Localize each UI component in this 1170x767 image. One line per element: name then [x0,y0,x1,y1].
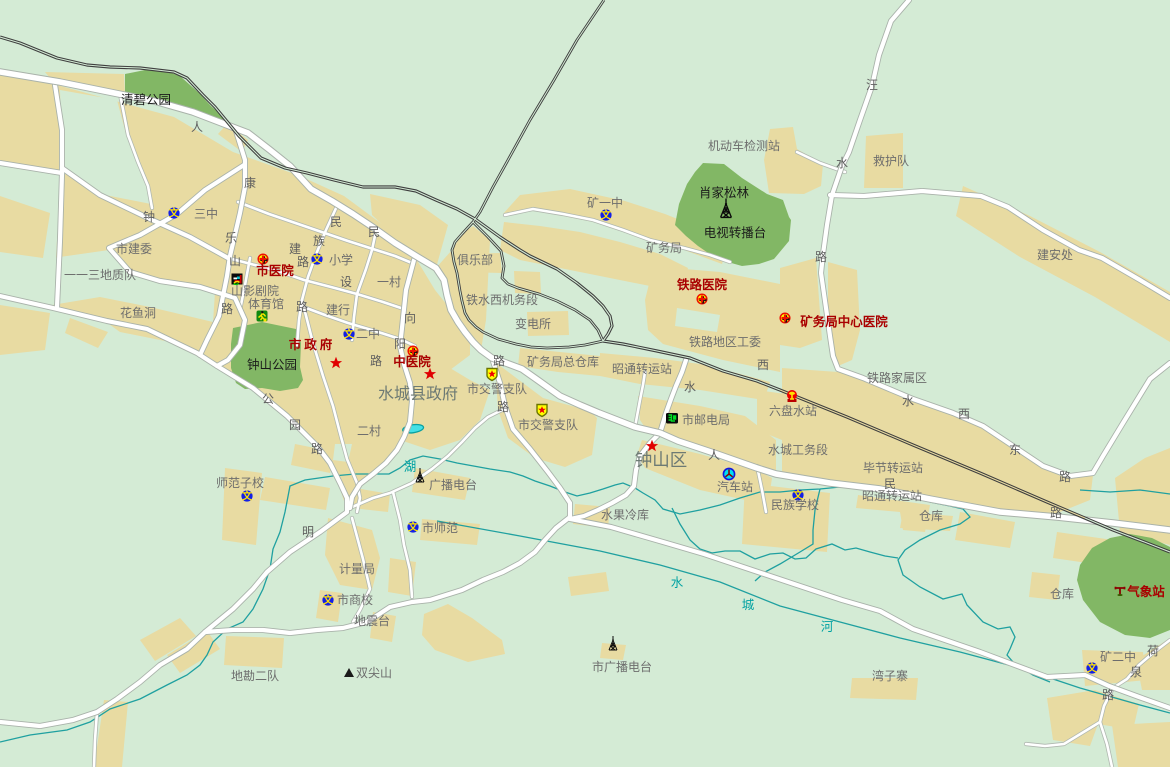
svg-text:市商校: 市商校 [337,592,373,607]
svg-text:汽车站: 汽车站 [717,479,753,494]
svg-text:市交警支队: 市交警支队 [467,381,527,396]
svg-text:二村: 二村 [357,424,381,438]
svg-text:湾子寨: 湾子寨 [872,668,908,683]
svg-text:市广播电台: 市广播电台 [592,659,652,674]
svg-text:路: 路 [221,301,233,316]
svg-text:气象站: 气象站 [1126,584,1165,599]
svg-text:水: 水 [836,156,848,170]
svg-text:一一三地质队: 一一三地质队 [64,267,136,282]
svg-text:路: 路 [370,353,382,368]
svg-text:设: 设 [340,275,352,289]
svg-text:向: 向 [404,310,416,325]
svg-text:仓库: 仓库 [1050,586,1074,601]
svg-text:一村: 一村 [377,275,401,289]
svg-text:毕节转运站: 毕节转运站 [863,460,923,475]
svg-text:民族学校: 民族学校 [771,497,819,512]
svg-text:肖家松林: 肖家松林 [699,185,750,200]
svg-text:园: 园 [289,418,301,432]
svg-text:六盘水站: 六盘水站 [769,403,817,418]
svg-text:市政府: 市政府 [289,337,336,352]
svg-text:水城工务段: 水城工务段 [768,442,828,457]
svg-text:铁路医院: 铁路医院 [677,277,728,292]
svg-text:水城县政府: 水城县政府 [378,385,458,403]
svg-text:地震台: 地震台 [354,613,390,628]
svg-text:铁水西机务段: 铁水西机务段 [466,292,538,307]
svg-text:体育馆: 体育馆 [248,296,284,311]
svg-text:泉: 泉 [1130,665,1142,679]
svg-text:矿务局总仓库: 矿务局总仓库 [527,354,599,369]
svg-text:西: 西 [958,407,970,421]
svg-text:公: 公 [262,392,274,406]
svg-text:铁路地区工委: 铁路地区工委 [689,334,761,349]
svg-text:河: 河 [821,620,834,634]
svg-text:铁路家属区: 铁路家属区 [867,370,927,385]
svg-text:人: 人 [191,120,203,134]
svg-text:花鱼洞: 花鱼洞 [120,305,156,320]
svg-text:市医院: 市医院 [256,263,294,278]
svg-text:仓库: 仓库 [919,508,943,523]
svg-text:山: 山 [229,254,241,268]
svg-text:清碧公园: 清碧公园 [121,93,171,107]
svg-text:地勘二队: 地勘二队 [231,668,279,683]
svg-text:广播电台: 广播电台 [429,477,477,492]
svg-text:钟山公园: 钟山公园 [247,357,297,372]
svg-text:双尖山: 双尖山 [356,666,392,680]
svg-text:小学: 小学 [329,252,353,267]
svg-text:荷: 荷 [1147,644,1159,658]
svg-text:变电所: 变电所 [515,316,551,331]
svg-text:建行: 建行 [326,303,350,317]
svg-text:路: 路 [311,441,323,456]
svg-text:路: 路 [1059,469,1071,484]
svg-text:东: 东 [1009,443,1021,457]
svg-text:人: 人 [708,448,720,462]
svg-text:昭通转运站: 昭通转运站 [612,361,672,376]
svg-text:路: 路 [296,299,308,314]
svg-text:建: 建 [289,242,301,256]
svg-text:市邮电局: 市邮电局 [682,412,730,427]
svg-text:市师范: 市师范 [422,520,458,535]
svg-text:水: 水 [684,380,696,394]
svg-text:中医院: 中医院 [393,354,431,369]
svg-text:民: 民 [368,225,380,239]
svg-text:水: 水 [671,576,684,590]
svg-text:乐: 乐 [225,231,237,245]
svg-text:钟山区: 钟山区 [635,450,688,470]
svg-text:城: 城 [742,598,755,612]
svg-text:电视转播台: 电视转播台 [704,225,767,240]
svg-text:市建委: 市建委 [116,241,152,256]
svg-text:路: 路 [1102,687,1114,702]
svg-text:水: 水 [902,394,914,408]
svg-text:明: 明 [302,525,314,539]
svg-text:路: 路 [493,353,505,368]
svg-text:钟: 钟 [143,209,155,224]
svg-text:计量局: 计量局 [339,562,375,576]
svg-text:机动车检测站: 机动车检测站 [708,138,780,153]
svg-text:矿务局中心医院: 矿务局中心医院 [800,314,888,329]
svg-text:俱乐部: 俱乐部 [457,252,493,267]
svg-text:三中: 三中 [194,206,218,221]
svg-text:湖: 湖 [404,459,417,474]
svg-text:山影剧院: 山影剧院 [231,284,279,298]
svg-text:水果冷库: 水果冷库 [601,507,649,522]
svg-text:师范子校: 师范子校 [216,475,264,490]
svg-text:民: 民 [330,215,342,229]
svg-text:路: 路 [815,249,827,264]
svg-text:族: 族 [313,234,325,248]
svg-text:矿务局: 矿务局 [646,240,682,255]
svg-text:救护队: 救护队 [873,153,909,168]
svg-text:矿一中: 矿一中 [587,195,623,210]
svg-text:矿二中: 矿二中 [1100,649,1136,664]
svg-text:路: 路 [297,254,309,269]
svg-text:汪: 汪 [866,78,878,92]
svg-text:二中: 二中 [356,326,380,341]
svg-text:路: 路 [497,399,509,414]
svg-text:康: 康 [244,175,256,190]
svg-text:路: 路 [1050,505,1062,520]
svg-text:建安处: 建安处 [1037,247,1073,262]
svg-text:西: 西 [757,358,769,372]
svg-text:市交警支队: 市交警支队 [518,417,578,432]
svg-text:阳: 阳 [394,337,406,351]
svg-text:民: 民 [884,477,896,491]
